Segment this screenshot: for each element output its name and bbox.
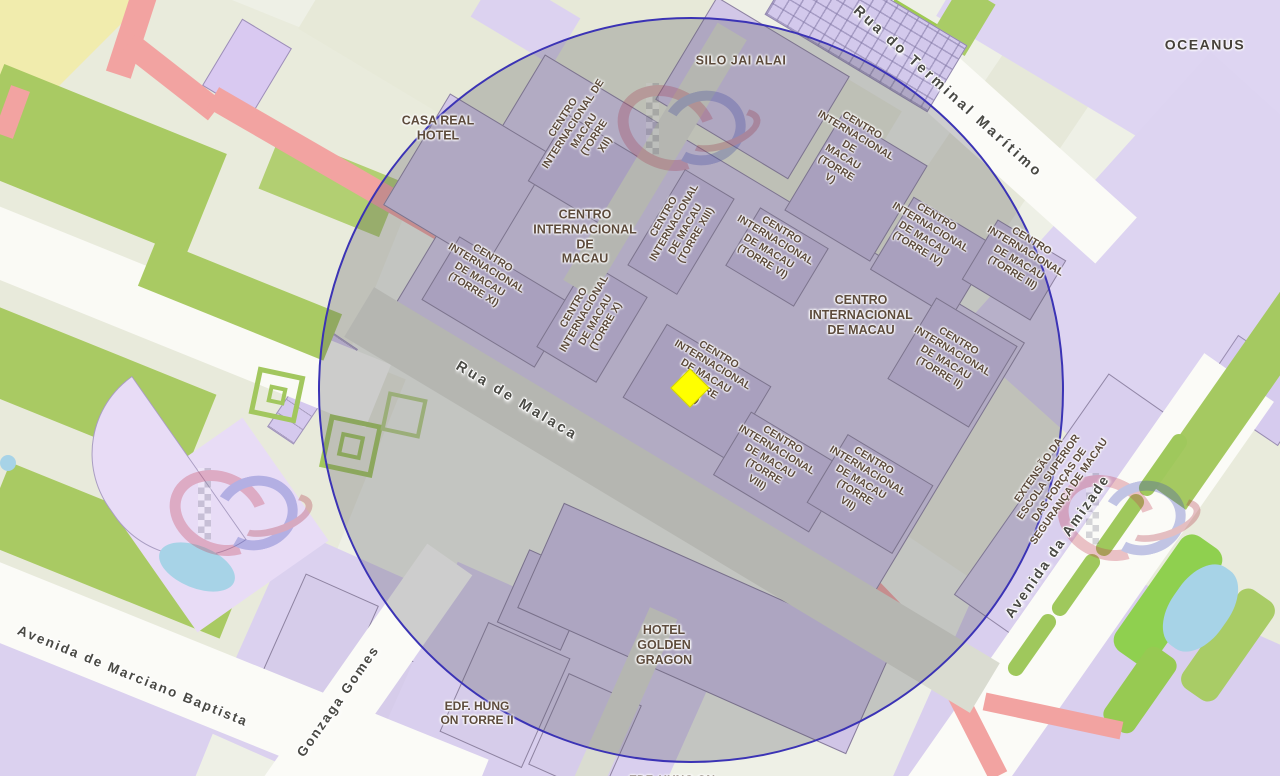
pond (0, 455, 16, 471)
garden-diamond-inner (337, 432, 365, 460)
garden-diamond-inner (266, 384, 287, 405)
map-canvas[interactable]: OCEANUS SILO JAI ALAI CASA REAL HOTEL CE… (0, 0, 1280, 776)
garden-diamond (380, 391, 427, 438)
garden-diamond (249, 367, 306, 424)
garden-diamond (319, 414, 383, 478)
